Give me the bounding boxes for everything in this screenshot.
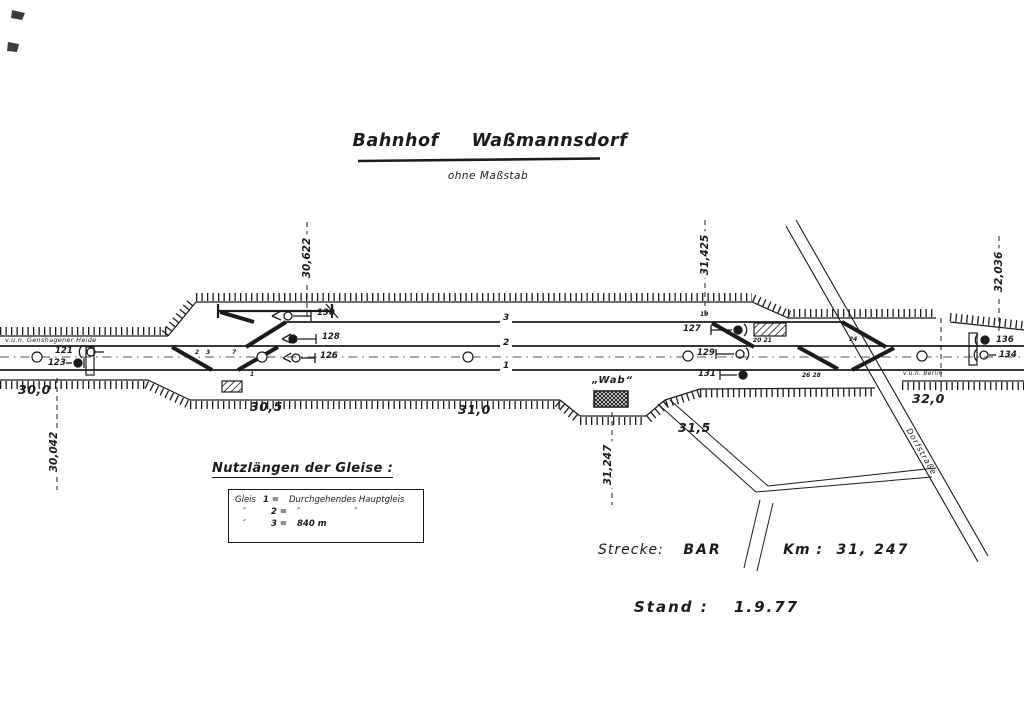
route-info: Strecke: BAR Km : 31, 247 — [598, 543, 909, 557]
page-subtitle: ohne Maßstab — [398, 171, 578, 182]
point-24: 24 — [849, 337, 857, 343]
km-circles — [32, 351, 927, 362]
point-7: 7 — [232, 350, 236, 356]
station-building-label: „Wab“ — [592, 376, 633, 386]
legend-box: Gleis 1 = Durchgehendes Hauptgleis ″ 2 =… — [228, 489, 424, 543]
signal-131: 131 — [698, 370, 716, 379]
boundary-bottom — [0, 380, 1024, 421]
chainage-31-247: 31,247 — [602, 442, 615, 489]
legend-row-3-value: 840 m — [297, 518, 417, 530]
chainage-30-622: 30,622 — [301, 235, 314, 282]
legend-row-2: ″ 2 = ″ ″ — [235, 506, 417, 518]
direction-right: v.u.n. Berlin — [903, 371, 943, 377]
legend-heading: Nutzlängen der Gleise : — [212, 462, 393, 478]
chainage-31-425: 31,425 — [699, 232, 712, 279]
signal-123: 123 — [48, 359, 66, 368]
point-2: 2 — [195, 350, 199, 356]
signal-130: 130 — [317, 309, 335, 318]
legend-row-3-gleis: ″ — [235, 518, 271, 530]
stand-label: Stand : — [634, 598, 709, 616]
direction-left: v.u.n. Genshagener Heide — [5, 337, 96, 344]
km-mark-32-0: 32,0 — [912, 393, 945, 406]
legend-row-2-gleis: ″ — [235, 506, 271, 518]
small-building-left — [222, 381, 242, 392]
legend-row-3-num: 3 = — [271, 518, 297, 530]
signal-121: 121 — [55, 347, 73, 356]
page-title: Bahnhof Waßmannsdorf — [320, 133, 660, 151]
km-value: 31, 247 — [836, 542, 909, 558]
km-mark-30-5: 30,5 — [250, 401, 283, 414]
point-1: 1 — [250, 372, 254, 378]
track-3-number: 3 — [500, 314, 512, 323]
signal-136: 136 — [996, 336, 1014, 345]
signal-129: 129 — [697, 349, 715, 358]
chainage-32-036: 32,036 — [993, 249, 1006, 296]
legend-row-3: ″ 3 = 840 m — [235, 518, 417, 530]
title-underline — [358, 159, 600, 162]
signal-128: 128 — [322, 333, 340, 342]
track-1-number: 1 — [500, 362, 512, 371]
signal-126: 126 — [320, 352, 338, 361]
point-3: 3 — [206, 350, 210, 356]
km-mark-30-0: 30,0 — [18, 384, 51, 397]
scan-artifacts — [7, 10, 25, 52]
limit-brackets — [86, 333, 977, 375]
legend-row-1: Gleis 1 = Durchgehendes Hauptgleis — [235, 494, 417, 506]
km-mark-31-5: 31,5 — [678, 422, 711, 435]
legend-row-1-num: 1 = — [263, 494, 289, 506]
signal-box — [754, 323, 786, 336]
km-mark-31-0: 31,0 — [458, 404, 491, 417]
stand-value: 1.9.77 — [734, 598, 799, 616]
point-19: 19 — [700, 312, 708, 318]
track-2-number: 2 — [500, 339, 512, 348]
strecke-value: BAR — [683, 542, 721, 558]
km-label: Km : — [783, 542, 823, 558]
points-20-21: 20 21 — [753, 338, 772, 344]
track-plan-sheet: Bahnhof Waßmannsdorf ohne Maßstab v.u.n.… — [0, 0, 1024, 724]
strecke-label: Strecke: — [598, 542, 664, 558]
points-26-28: 26 28 — [802, 373, 821, 379]
legend-row-1-gleis: Gleis — [235, 494, 263, 506]
chainage-30-042: 30,042 — [48, 429, 61, 476]
legend-row-1-value: Durchgehendes Hauptgleis — [289, 494, 417, 506]
turnouts — [172, 312, 894, 370]
signal-127: 127 — [683, 325, 701, 334]
legend-row-2-num: 2 = — [271, 506, 297, 518]
stand-info: Stand : 1.9.77 — [634, 600, 799, 615]
signal-134: 134 — [999, 351, 1017, 360]
station-building — [594, 391, 628, 407]
legend-row-2-value: ″ ″ — [297, 506, 417, 518]
